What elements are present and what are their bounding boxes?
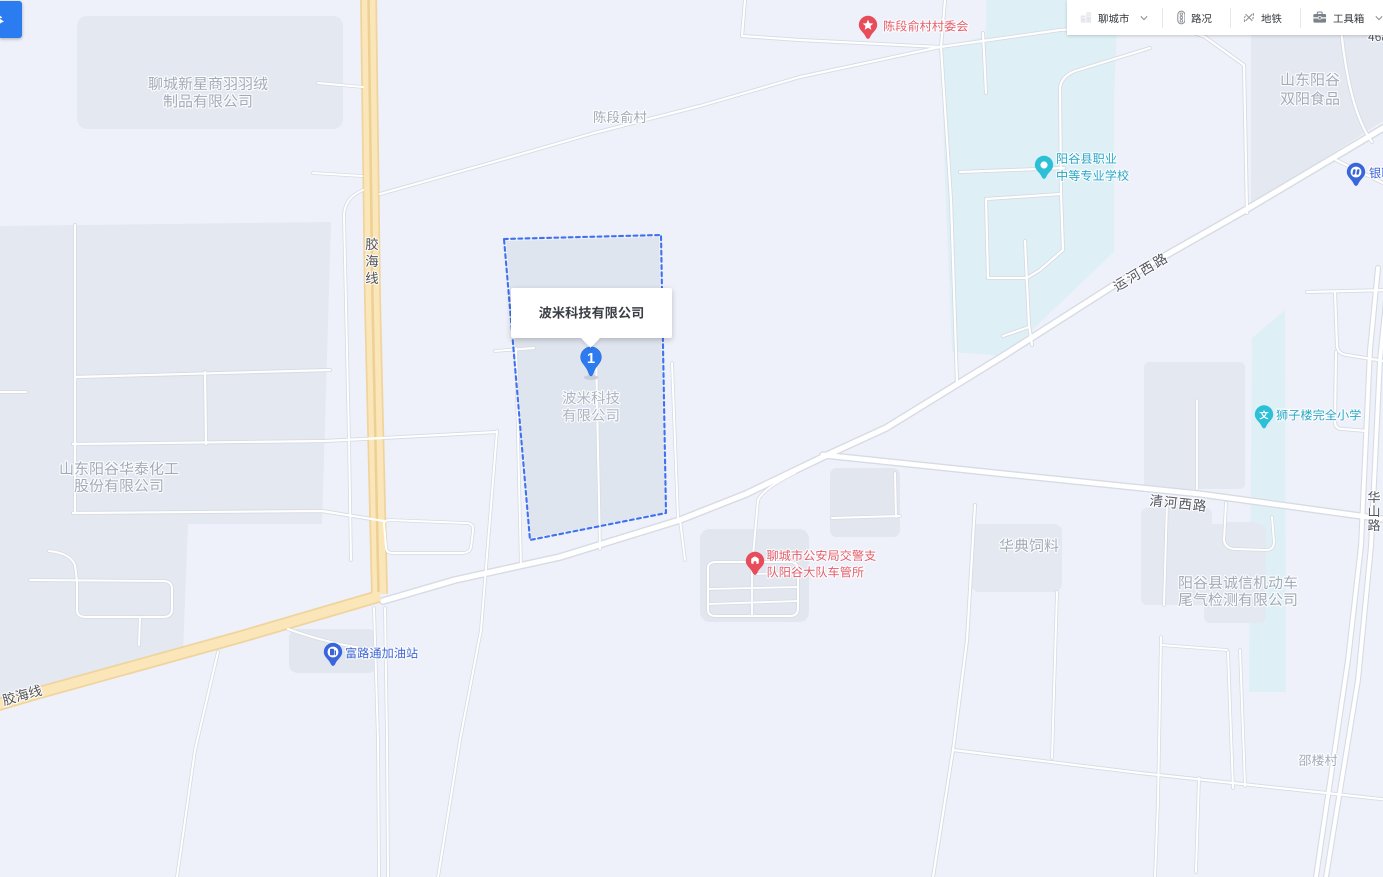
svg-text:1: 1	[587, 351, 595, 367]
